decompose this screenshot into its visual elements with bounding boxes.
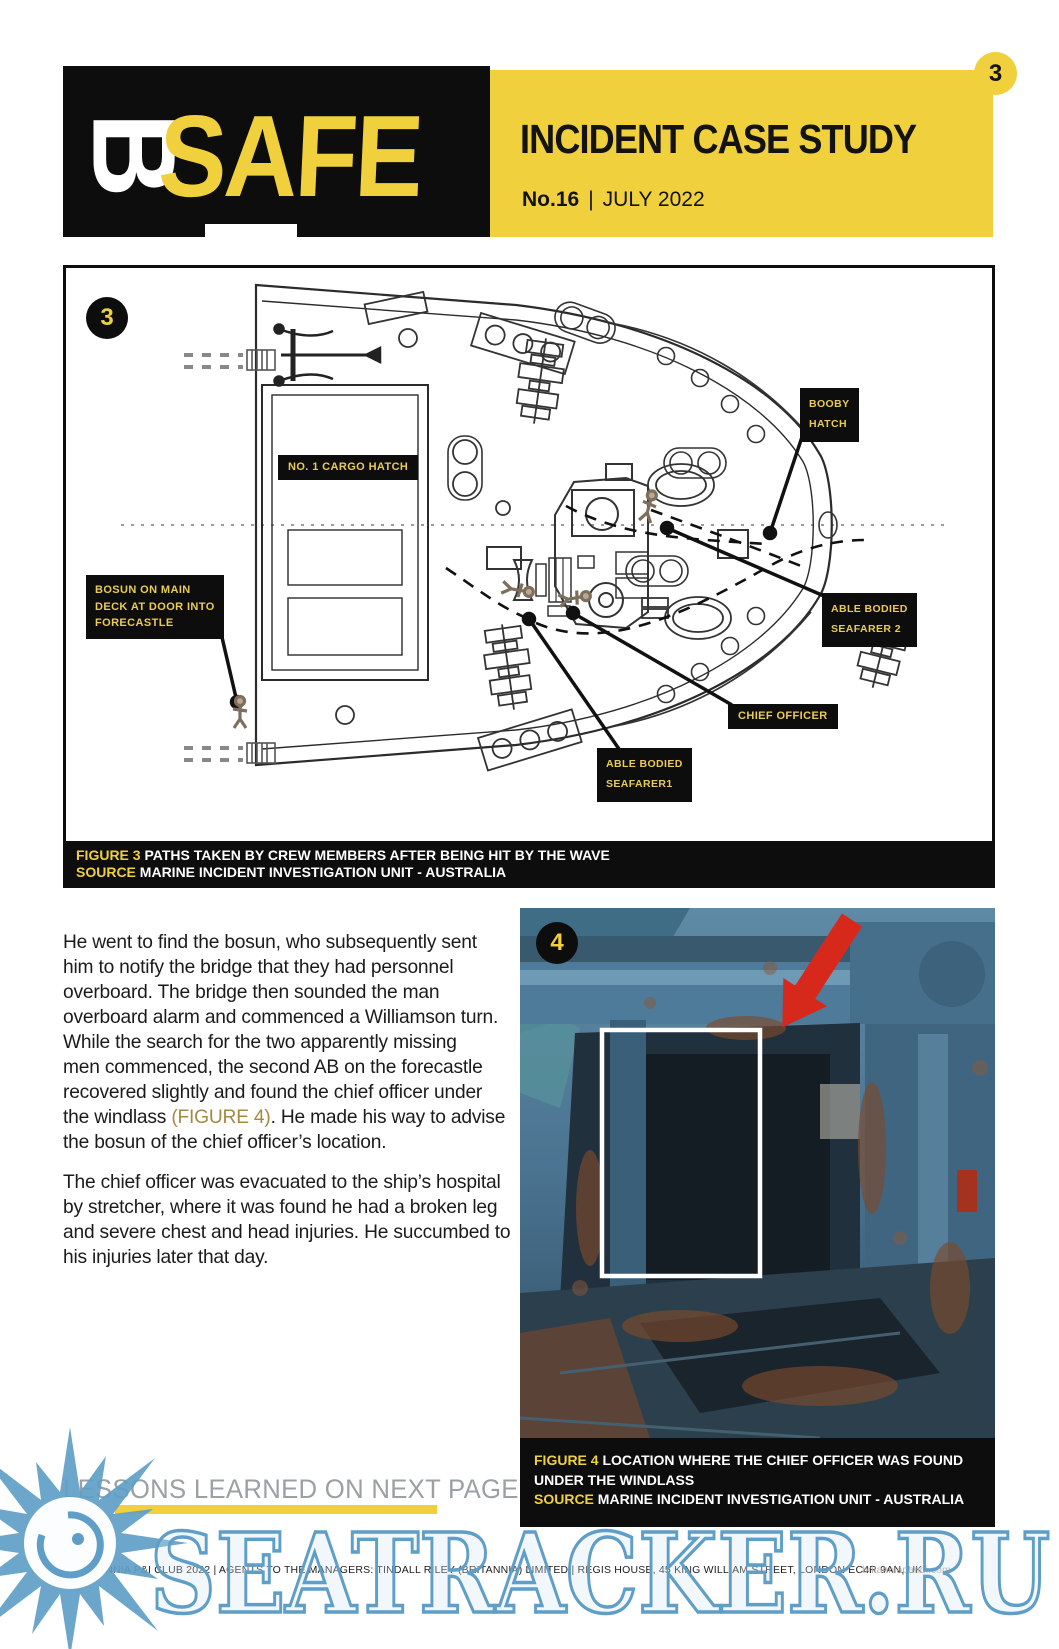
figure4-badge: 4 bbox=[536, 922, 578, 964]
label-seafarer1: ABLE BODIED SEAFARER1 bbox=[597, 748, 692, 802]
deck-fittings bbox=[336, 292, 731, 724]
windlass-photo-art bbox=[520, 908, 995, 1438]
source-label: SOURCE bbox=[76, 864, 136, 880]
issue-date: JULY 2022 bbox=[603, 188, 705, 211]
logo-safe-text: SAFE bbox=[156, 98, 423, 214]
label-seafarer2: ABLE BODIED SEAFARER 2 bbox=[822, 593, 917, 647]
lessons-banner: LESSONS LEARNED ON NEXT PAGE bbox=[63, 1474, 519, 1505]
footer-copyright: © BRITANNIA P&I CLUB 2022 | AGENTS TO TH… bbox=[63, 1564, 922, 1576]
page-title: INCIDENT CASE STUDY bbox=[520, 116, 916, 163]
lessons-underline bbox=[115, 1505, 437, 1514]
anchor-icon bbox=[275, 325, 381, 386]
footer-website: britanniapandi.com bbox=[862, 1564, 951, 1576]
body-text: He went to find the bosun, who subsequen… bbox=[63, 930, 518, 1270]
source-label: SOURCE bbox=[534, 1491, 594, 1507]
figure3-badge: 3 bbox=[86, 297, 128, 339]
figure4-caption: FIGURE 4 LOCATION WHERE THE CHIEF OFFICE… bbox=[520, 1438, 995, 1527]
windlass-shape bbox=[514, 464, 648, 628]
cargo-hatch-shape bbox=[262, 385, 428, 680]
figure4-panel: 4 FIGURE 4 LOCATION WHERE THE CHIEF OFFI… bbox=[520, 908, 995, 1527]
label-bosun: BOSUN ON MAIN DECK AT DOOR INTO FORECAST… bbox=[86, 575, 224, 639]
ship-deck-diagram bbox=[66, 268, 992, 841]
page-number-badge: 3 bbox=[974, 52, 1017, 95]
issue-divider: | bbox=[588, 188, 593, 211]
windlass-photo: 4 bbox=[520, 908, 995, 1438]
label-cargo-hatch: NO. 1 CARGO HATCH bbox=[278, 455, 418, 480]
bsafe-logo: B SAFE bbox=[63, 66, 490, 237]
logo-tab-shape bbox=[205, 224, 297, 237]
figure4-reference: (FIGURE 4) bbox=[171, 1107, 270, 1128]
watermark-sun-icon bbox=[0, 1427, 188, 1649]
label-chief-officer: CHIEF OFFICER bbox=[728, 704, 838, 729]
figure-label: FIGURE 4 bbox=[534, 1452, 599, 1468]
label-booby-hatch: BOOBY HATCH bbox=[800, 388, 859, 442]
seafarer2-figure-icon bbox=[638, 489, 660, 523]
figure3-caption: FIGURE 3 PATHS TAKEN BY CREW MEMBERS AFT… bbox=[66, 841, 992, 885]
issue-line: No.16|JULY 2022 bbox=[522, 188, 705, 212]
figure3-panel: 3 bbox=[63, 265, 995, 888]
document-page: B SAFE INCIDENT CASE STUDY No.16|JULY 20… bbox=[0, 0, 1059, 1649]
issue-number: No.16 bbox=[522, 188, 579, 211]
bosun-figure-icon bbox=[233, 697, 247, 729]
seafarer1-figure-icon bbox=[501, 580, 534, 599]
figure-label: FIGURE 3 bbox=[76, 847, 141, 863]
header-banner: INCIDENT CASE STUDY No.16|JULY 2022 bbox=[490, 70, 993, 237]
